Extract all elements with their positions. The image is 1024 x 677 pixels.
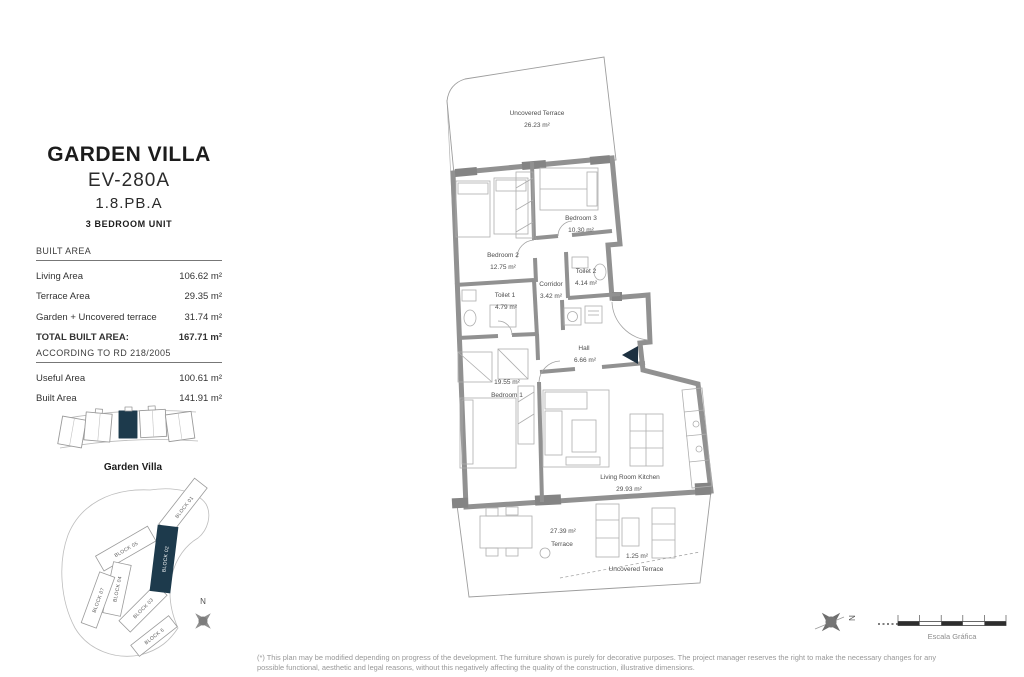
room-label: Toilet 1 [495, 292, 516, 299]
room-label: Terrace [551, 541, 573, 548]
room-label: Corridor [539, 281, 563, 288]
disclaimer-line-1: (*) This plan may be modified depending … [257, 653, 1009, 663]
strip-unit [165, 411, 195, 441]
room-area: 10.30 m² [568, 227, 594, 234]
room-area: 26.23 m² [524, 122, 550, 129]
room-area: 4.79 m² [495, 304, 518, 311]
room-label: Uncovered Terrace [510, 110, 565, 117]
strip-caption: Garden Villa [104, 462, 163, 473]
room-area: 1.25 m² [626, 553, 649, 560]
room-area: 29.93 m² [616, 486, 642, 493]
room-area: 6.66 m² [574, 357, 597, 364]
graphic-scale-bar: Escala Gráfica [878, 615, 1006, 641]
disclaimer-line-2: possible functional, aesthetic and legal… [257, 663, 1009, 673]
room-label: Hall [578, 345, 590, 352]
room-label: Bedroom 2 [487, 252, 519, 259]
footer-disclaimer: (*) This plan may be modified depending … [257, 653, 1009, 672]
room-area: 12.75 m² [490, 264, 516, 271]
strip-unit [139, 405, 167, 437]
room-label: Bedroom 1 [491, 392, 523, 399]
building-strip-diagram: Garden Villa [58, 405, 198, 473]
drawing-layer: Garden Villa BLOCK 01 BLOCK 02 BLOCK 05 … [0, 0, 1024, 677]
room-area: 3.42 m² [540, 293, 563, 300]
room-area: 19.55 m² [494, 379, 520, 386]
strip-unit-highlighted [119, 407, 137, 438]
site-compass-icon: N [187, 597, 218, 637]
site-plan: BLOCK 01 BLOCK 02 BLOCK 05 BLOCK 04 BLOC… [62, 478, 219, 656]
room-label: Toilet 2 [576, 268, 597, 275]
room-label: Living Room Kitchen [600, 474, 660, 481]
room-area: 27.39 m² [550, 528, 576, 535]
site-compass-n-label: N [200, 597, 206, 606]
scale-bar-label: Escala Gráfica [928, 632, 978, 641]
room-area: 4.14 m² [575, 280, 598, 287]
room-label: Bedroom 3 [565, 215, 597, 222]
compass-icon: N [813, 604, 856, 641]
strip-unit [58, 416, 86, 448]
room-label: Uncovered Terrace [609, 566, 664, 573]
floor-plan: Uncovered Terrace 26.23 m² Bedroom 2 12.… [447, 57, 712, 597]
compass-n-label: N [847, 615, 856, 621]
